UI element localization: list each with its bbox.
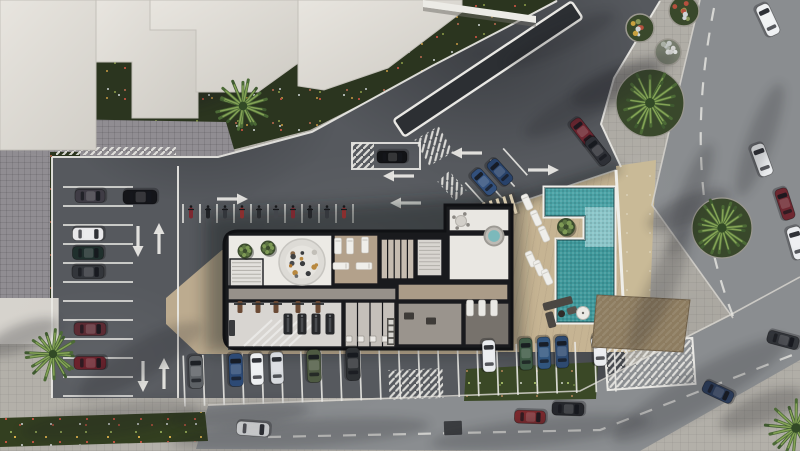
aerial-site-plan-render	[0, 0, 800, 451]
